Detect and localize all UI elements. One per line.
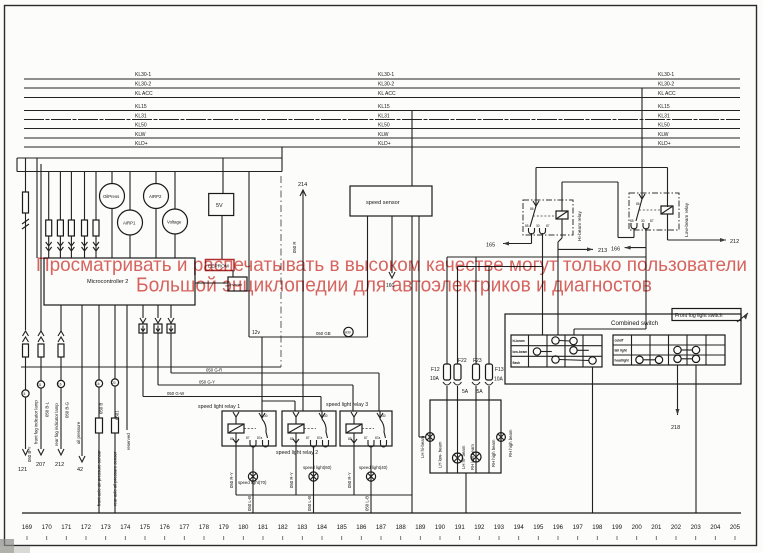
svg-text:85: 85 bbox=[630, 219, 634, 223]
svg-text:189: 189 bbox=[415, 524, 426, 531]
svg-text:30: 30 bbox=[641, 219, 645, 223]
svg-text:reserved: reserved bbox=[126, 433, 131, 450]
svg-text:F23: F23 bbox=[473, 358, 482, 364]
svg-text:212: 212 bbox=[730, 239, 739, 245]
svg-text:5V: 5V bbox=[216, 203, 223, 209]
svg-text:87a: 87a bbox=[375, 436, 381, 440]
svg-text:5A: 5A bbox=[477, 389, 484, 395]
svg-text:050 L-B: 050 L-B bbox=[365, 496, 370, 511]
svg-text:front fog indicator lamp: front fog indicator lamp bbox=[34, 400, 39, 444]
svg-text:171: 171 bbox=[61, 524, 72, 531]
svg-text:188: 188 bbox=[396, 524, 407, 531]
svg-text:204: 204 bbox=[710, 524, 721, 531]
svg-text:192: 192 bbox=[474, 524, 485, 531]
svg-text:169: 169 bbox=[22, 524, 33, 531]
svg-text:185: 185 bbox=[337, 524, 348, 531]
svg-text:10A: 10A bbox=[494, 377, 504, 383]
svg-text:headlight: headlight bbox=[615, 359, 630, 363]
svg-text:30: 30 bbox=[264, 414, 268, 418]
svg-text:87: 87 bbox=[306, 436, 310, 440]
svg-text:KL30-2: KL30-2 bbox=[378, 82, 394, 88]
svg-text:KL30-2: KL30-2 bbox=[135, 82, 151, 88]
svg-text:195: 195 bbox=[533, 524, 544, 531]
svg-text:30: 30 bbox=[536, 224, 540, 228]
svg-text:KL15: KL15 bbox=[135, 104, 147, 110]
svg-text:oil pressure: oil pressure bbox=[76, 421, 81, 444]
svg-text:16: 16 bbox=[96, 382, 100, 386]
svg-text:RH high beam: RH high beam bbox=[491, 439, 496, 467]
svg-text:86: 86 bbox=[636, 202, 640, 206]
svg-text:214: 214 bbox=[298, 182, 307, 188]
svg-text:rear fog indicator lamp: rear fog indicator lamp bbox=[54, 403, 59, 446]
svg-text:LH hi- beam: LH hi- beam bbox=[461, 445, 466, 469]
svg-text:87a: 87a bbox=[257, 436, 263, 440]
svg-text:180: 180 bbox=[238, 524, 249, 531]
svg-text:181: 181 bbox=[258, 524, 269, 531]
svg-text:tail light: tail light bbox=[615, 349, 628, 353]
svg-text:KL31: KL31 bbox=[658, 114, 670, 120]
svg-text:AIRP1: AIRP1 bbox=[123, 221, 136, 226]
svg-text:Просматривать и распечатывать: Просматривать и распечатывать в высоком … bbox=[36, 254, 747, 276]
svg-text:speed light(40): speed light(40) bbox=[359, 465, 388, 470]
svg-text:LH hi-beam: LH hi-beam bbox=[420, 435, 425, 458]
svg-text:212: 212 bbox=[55, 462, 64, 468]
svg-text:87: 87 bbox=[546, 224, 550, 228]
svg-text:193: 193 bbox=[494, 524, 505, 531]
svg-text:218: 218 bbox=[671, 425, 680, 431]
svg-text:LH low- beam: LH low- beam bbox=[438, 441, 443, 468]
svg-text:KL31: KL31 bbox=[135, 114, 147, 120]
svg-text:12v: 12v bbox=[252, 330, 261, 336]
svg-text:190: 190 bbox=[435, 524, 446, 531]
svg-text:178: 178 bbox=[199, 524, 210, 531]
svg-text:179: 179 bbox=[219, 524, 230, 531]
svg-text:050 B: 050 B bbox=[99, 403, 104, 414]
svg-text:196: 196 bbox=[553, 524, 564, 531]
svg-text:166: 166 bbox=[611, 247, 620, 253]
svg-text:87: 87 bbox=[364, 436, 368, 440]
svg-text:050 R-Y: 050 R-Y bbox=[229, 472, 234, 488]
svg-text:speed light relay 2: speed light relay 2 bbox=[276, 450, 318, 456]
svg-text:30: 30 bbox=[324, 414, 328, 418]
svg-text:050 G-R: 050 G-R bbox=[206, 368, 222, 373]
svg-text:050 L-B: 050 L-B bbox=[247, 496, 252, 511]
svg-text:85: 85 bbox=[290, 437, 294, 441]
svg-text:205: 205 bbox=[730, 524, 741, 531]
svg-text:Большой энциклопедии для автоэ: Большой энциклопедии для автоэлектриков … bbox=[136, 275, 652, 297]
svg-text:170: 170 bbox=[42, 524, 53, 531]
svg-text:050 GB: 050 GB bbox=[316, 331, 331, 336]
svg-text:KL ACC: KL ACC bbox=[378, 91, 396, 97]
svg-text:Combined switch: Combined switch bbox=[611, 320, 659, 327]
svg-text:KLW: KLW bbox=[658, 132, 669, 138]
svg-text:87: 87 bbox=[246, 436, 250, 440]
svg-text:0501: 0501 bbox=[115, 410, 120, 420]
svg-text:A30: A30 bbox=[345, 331, 351, 335]
svg-text:AIRP2: AIRP2 bbox=[149, 194, 162, 199]
svg-text:KL30-1: KL30-1 bbox=[378, 72, 394, 78]
svg-text:85: 85 bbox=[230, 437, 234, 441]
svg-text:87a: 87a bbox=[317, 436, 323, 440]
svg-text:low-beam: low-beam bbox=[513, 350, 528, 354]
svg-text:5A: 5A bbox=[462, 389, 469, 395]
svg-text:172: 172 bbox=[81, 524, 92, 531]
svg-text:184: 184 bbox=[317, 524, 328, 531]
svg-text:KL31: KL31 bbox=[378, 114, 390, 120]
svg-text:176: 176 bbox=[160, 524, 171, 531]
svg-text:RH low beam: RH low beam bbox=[470, 444, 475, 470]
svg-text:KL50: KL50 bbox=[135, 123, 147, 129]
svg-text:200: 200 bbox=[632, 524, 643, 531]
svg-text:20: 20 bbox=[112, 381, 116, 385]
svg-text:182: 182 bbox=[278, 524, 289, 531]
svg-text:KL50: KL50 bbox=[658, 123, 670, 129]
svg-text:86: 86 bbox=[530, 207, 534, 211]
svg-text:175: 175 bbox=[140, 524, 151, 531]
svg-text:174: 174 bbox=[120, 524, 131, 531]
svg-text:flash: flash bbox=[513, 361, 520, 365]
svg-text:F13: F13 bbox=[495, 367, 504, 373]
svg-text:202: 202 bbox=[671, 524, 682, 531]
svg-text:KL50: KL50 bbox=[378, 123, 390, 129]
svg-text:203: 203 bbox=[691, 524, 702, 531]
svg-text:050 B-Y: 050 B-Y bbox=[27, 446, 32, 462]
svg-text:KL30-2: KL30-2 bbox=[658, 82, 674, 88]
svg-text:050 B-L: 050 B-L bbox=[45, 401, 50, 417]
svg-text:F12: F12 bbox=[431, 367, 440, 373]
svg-text:050 G-Y: 050 G-Y bbox=[199, 380, 215, 385]
svg-text:speed sensor: speed sensor bbox=[366, 200, 400, 206]
svg-text:KLD+: KLD+ bbox=[378, 141, 391, 147]
svg-text:speed light relay 1: speed light relay 1 bbox=[198, 404, 240, 410]
svg-text:199: 199 bbox=[612, 524, 623, 531]
svg-text:KL15: KL15 bbox=[658, 104, 670, 110]
svg-text:speed light relay 3: speed light relay 3 bbox=[326, 402, 368, 408]
svg-text:050 B-G: 050 B-G bbox=[65, 401, 70, 418]
svg-text:speed light(60): speed light(60) bbox=[303, 465, 332, 470]
svg-text:OilPress: OilPress bbox=[103, 194, 119, 199]
svg-text:207: 207 bbox=[36, 462, 45, 468]
svg-text:42: 42 bbox=[77, 467, 83, 473]
svg-text:050 R: 050 R bbox=[292, 242, 297, 253]
svg-text:10A: 10A bbox=[430, 376, 440, 382]
svg-text:121: 121 bbox=[18, 467, 27, 473]
svg-text:KLW: KLW bbox=[135, 132, 146, 138]
svg-text:speed light(70): speed light(70) bbox=[238, 480, 267, 485]
svg-text:KLD+: KLD+ bbox=[135, 141, 148, 147]
svg-text:31: 31 bbox=[38, 383, 42, 387]
svg-text:RH high beam: RH high beam bbox=[508, 429, 513, 457]
svg-text:183: 183 bbox=[297, 524, 308, 531]
svg-text:KL15: KL15 bbox=[378, 104, 390, 110]
svg-text:191: 191 bbox=[455, 524, 466, 531]
svg-text:F22: F22 bbox=[458, 358, 467, 364]
svg-text:front axle air pressure sensor: front axle air pressure sensor bbox=[97, 450, 102, 506]
svg-text:Low-beam relay: Low-beam relay bbox=[684, 202, 690, 237]
svg-text:197: 197 bbox=[573, 524, 584, 531]
svg-text:85: 85 bbox=[525, 224, 529, 228]
svg-text:050 R-Y: 050 R-Y bbox=[347, 472, 352, 488]
svg-text:198: 198 bbox=[592, 524, 603, 531]
svg-text:KL30-1: KL30-1 bbox=[135, 72, 151, 78]
svg-text:Front fog light switch: Front fog light switch bbox=[675, 313, 723, 319]
svg-text:KLW: KLW bbox=[378, 132, 389, 138]
svg-text:187: 187 bbox=[376, 524, 387, 531]
svg-text:165: 165 bbox=[486, 243, 495, 249]
svg-text:cutoff: cutoff bbox=[615, 339, 625, 343]
svg-text:87: 87 bbox=[650, 219, 654, 223]
svg-text:hi-beam: hi-beam bbox=[513, 339, 525, 343]
svg-text:rear axle oil pressure sensor: rear axle oil pressure sensor bbox=[113, 451, 118, 506]
svg-text:Voltage: Voltage bbox=[167, 220, 182, 225]
svg-text:194: 194 bbox=[514, 524, 525, 531]
svg-text:KL ACC: KL ACC bbox=[658, 91, 676, 97]
svg-text:Microcontroller 2: Microcontroller 2 bbox=[87, 279, 128, 285]
svg-text:KL30-1: KL30-1 bbox=[658, 72, 674, 78]
svg-text:5: 5 bbox=[24, 392, 26, 396]
svg-text:16: 16 bbox=[58, 383, 62, 387]
svg-text:85: 85 bbox=[348, 437, 352, 441]
svg-text:050 G-W: 050 G-W bbox=[167, 391, 185, 396]
svg-text:186: 186 bbox=[356, 524, 367, 531]
svg-text:177: 177 bbox=[179, 524, 190, 531]
svg-text:30: 30 bbox=[382, 414, 386, 418]
svg-text:201: 201 bbox=[651, 524, 662, 531]
svg-text:Hi-beam relay: Hi-beam relay bbox=[577, 211, 583, 241]
svg-text:KL ACC: KL ACC bbox=[135, 91, 153, 97]
svg-text:050 L-B: 050 L-B bbox=[307, 496, 312, 511]
svg-text:050 R-Y: 050 R-Y bbox=[289, 472, 294, 488]
svg-text:KLD+: KLD+ bbox=[658, 141, 671, 147]
svg-text:173: 173 bbox=[101, 524, 112, 531]
